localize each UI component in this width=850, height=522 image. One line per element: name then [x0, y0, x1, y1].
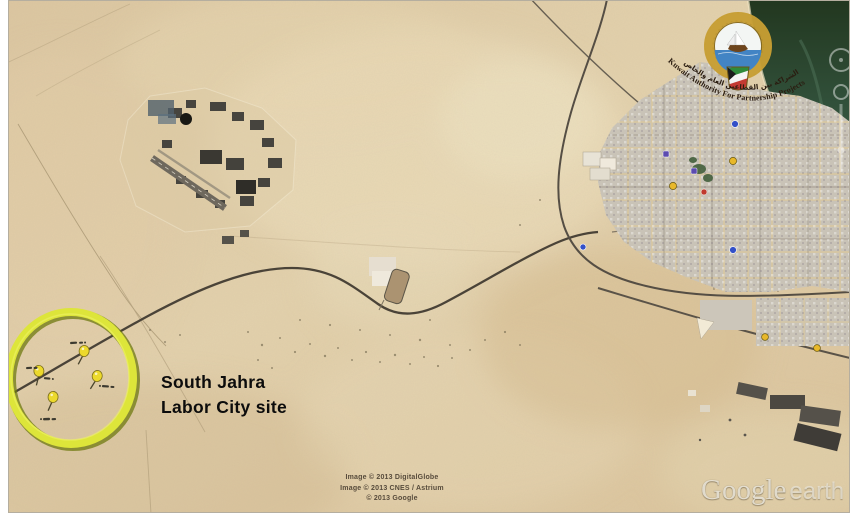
attribution-line3: © 2013 Google: [312, 494, 472, 505]
attribution-line2: Image © 2013 CNES / Astrium: [312, 484, 472, 495]
figure-stage: Kuwait Authority For Partnership Project…: [0, 0, 850, 522]
route-shield-icon: [669, 182, 676, 189]
poi-blue-icon: [732, 121, 739, 128]
mosque-icon: [663, 151, 669, 157]
google-logo-text: Google: [701, 474, 786, 506]
attribution-line1: Image © 2013 DigitalGlobe: [312, 473, 472, 484]
poi-blue-icon: [730, 247, 737, 254]
poi-red-icon: [701, 189, 707, 195]
route-shield-icon: [762, 334, 769, 341]
google-earth-watermark: Googleearth: [701, 474, 844, 507]
zoom-slider-knob[interactable]: [838, 147, 845, 154]
storage-pond: [180, 113, 192, 125]
mosque-icon: [691, 168, 697, 174]
route-shield-icon: [729, 157, 736, 164]
route-shield-icon: [814, 345, 821, 352]
site-label-line1: South Jahra: [161, 370, 287, 395]
map-canvas[interactable]: Kuwait Authority For Partnership Project…: [0, 0, 850, 522]
site-label-line2: Labor City site: [161, 395, 287, 420]
site-label: South Jahra Labor City site: [161, 370, 287, 420]
earth-logo-text: earth: [789, 478, 844, 505]
imagery-attribution: Image © 2013 DigitalGlobe Image © 2013 C…: [312, 473, 472, 505]
poi-blue-icon: [580, 244, 586, 250]
